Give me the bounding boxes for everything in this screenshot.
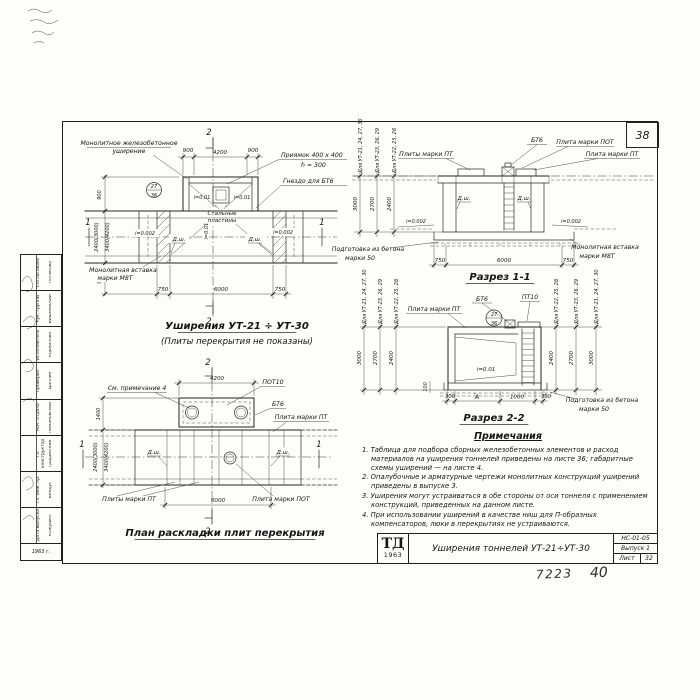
svg-text:2700: 2700	[370, 196, 376, 211]
section-axes	[85, 137, 337, 317]
svg-text:i=0.01: i=0.01	[477, 367, 496, 373]
label-see-note: См. примечание 4	[107, 385, 189, 408]
box-structure	[440, 320, 552, 396]
section-marker-1-right: 1	[319, 218, 324, 246]
svg-text:1: 1	[316, 440, 321, 450]
svg-text:2700: 2700	[569, 350, 575, 365]
svg-text:2400(3000): 2400(3000)	[94, 222, 100, 251]
detail-circle: 27 36	[486, 310, 502, 327]
height-dimensions: Для УТ-21, 24, 27, 30 Для УТ-23, 26, 29 …	[353, 118, 443, 237]
ground-lines	[352, 176, 655, 229]
svg-text:900: 900	[97, 190, 103, 200]
notes-title: Примечания	[362, 431, 654, 442]
logo-year: 1963	[384, 551, 403, 559]
svg-text:Разрез 1-1: Разрез 1-1	[469, 272, 530, 283]
notes-block: Примечания 1. Таблица для подбора сборны…	[362, 431, 654, 529]
section-marker-1-left: 1	[85, 218, 90, 246]
svg-text:Д.ш.: Д.ш.	[247, 237, 261, 243]
svg-text:2: 2	[206, 128, 211, 138]
sig-name: Корнилова	[49, 327, 61, 362]
slope-labels: i=0.002 i=0.002	[398, 219, 588, 227]
sheet-number: 32	[640, 554, 657, 563]
ladder-bt6	[504, 183, 514, 230]
svg-text:900: 900	[183, 148, 194, 154]
pit-square	[213, 187, 229, 203]
slope-floor-labels: i=0.002 i=0.002	[131, 228, 297, 237]
plan-plates-drawing: 2 4200 См. примечание 4 ПОТ10 БТ6	[75, 355, 350, 547]
svg-text:Д.ш.: Д.ш.	[275, 450, 289, 456]
svg-text:Плита марки ПОТ: Плита марки ПОТ	[252, 496, 311, 503]
svg-text:Для УТ-22, 25, 28: Для УТ-22, 25, 28	[554, 279, 560, 325]
svg-text:Для УТ-21, 24, 27, 30: Для УТ-21, 24, 27, 30	[594, 269, 600, 325]
pencil-number-right: 40	[590, 565, 608, 582]
svg-text:3400(4200): 3400(4200)	[105, 222, 111, 251]
label-plate-pt: Плита марки ПТ	[406, 306, 466, 328]
sig-name: Цаплин	[49, 363, 61, 398]
cover-plates	[438, 163, 549, 183]
svg-text:300: 300	[445, 394, 455, 400]
sig-name: Кожушко	[49, 508, 61, 543]
svg-text:900: 900	[248, 148, 259, 154]
svg-text:6000: 6000	[497, 258, 512, 264]
svg-text:Плита марки ПТ: Плита марки ПТ	[408, 306, 462, 313]
svg-text:Монолитная вставка: Монолитная вставка	[571, 244, 639, 251]
label-concrete-prep: Подготовка из бетона марки 50	[550, 392, 638, 413]
svg-text:i=0.002: i=0.002	[135, 231, 155, 237]
svg-text:Разрез 2-2: Разрез 2-2	[463, 413, 524, 424]
label-bt6: БТ6	[472, 296, 507, 321]
svg-text:Плиты марки ПТ: Плиты марки ПТ	[102, 496, 157, 503]
sheet-cell: Лист 32	[614, 554, 657, 563]
svg-text:Стальные: Стальные	[208, 211, 238, 217]
svg-text:Для УТ-21, 24, 27, 30: Для УТ-21, 24, 27, 30	[358, 118, 364, 174]
plan-widening-drawing: 2 2 1 1 900 4200 900 Приямок 400 х 400 h…	[75, 121, 350, 358]
label-monolithic-insert: Монолитная вставка марки М8Т	[570, 239, 639, 260]
svg-text:2400: 2400	[389, 350, 395, 365]
label-plates-pt-left: Плиты марки ПТ	[398, 151, 470, 170]
svg-text:36: 36	[491, 321, 497, 327]
svg-text:36: 36	[151, 193, 157, 199]
sig-name: Градинский	[49, 436, 61, 471]
sheet-label: Лист	[614, 555, 640, 562]
scanned-drawing-sheet: 38 СогласованоПолякова Рук. группыВишнев…	[0, 0, 700, 700]
svg-text:2: 2	[205, 358, 210, 368]
label-monolithic-insert: Монолитная вставка марки М8Т	[89, 256, 161, 282]
note-item-2: 2. Опалубочные и арматурные чертежи моно…	[362, 473, 654, 491]
publisher-logo: ТД 1963	[378, 534, 409, 563]
svg-text:4200: 4200	[210, 376, 225, 382]
svg-text:БТ6: БТ6	[476, 296, 488, 303]
label-steel-plates: Стальные пластины	[204, 205, 240, 224]
svg-text:100: 100	[423, 382, 429, 392]
sig-name: Лимановский	[49, 400, 61, 435]
svg-text:3000: 3000	[357, 350, 363, 365]
label-plate-pot: Плита марки ПОТ	[236, 464, 311, 503]
plate-band	[89, 430, 337, 485]
label-bt6: БТ6	[511, 137, 547, 165]
svg-text:Приямок 400 х 400: Приямок 400 х 400	[281, 152, 343, 159]
svg-text:уширение: уширение	[112, 148, 146, 155]
svg-text:2400: 2400	[549, 350, 555, 365]
section-2-2-title: Разрез 2-2	[460, 413, 528, 425]
issue-number: Выпуск 1	[614, 544, 657, 554]
note-item-3: 3. Уширения могут устраиваться в обе сто…	[362, 492, 654, 510]
svg-text:750: 750	[435, 258, 446, 264]
sig-name: Вишневский	[49, 291, 61, 326]
svg-text:3000: 3000	[589, 350, 595, 365]
sig-name: Полякова	[49, 255, 61, 290]
pot-plate	[179, 398, 254, 427]
svg-text:2700: 2700	[373, 350, 379, 365]
svg-text:Монолитное железобетонное: Монолитное железобетонное	[80, 139, 177, 147]
svg-text:марки 50: марки 50	[345, 255, 375, 262]
detail-circle: 27 36	[147, 183, 162, 200]
svg-text:Д.ш.: Д.ш.	[146, 450, 160, 456]
svg-text:Подготовка из бетона: Подготовка из бетона	[566, 396, 639, 404]
svg-text:1400: 1400	[96, 408, 102, 421]
svg-text:Д.ш.: Д.ш.	[456, 196, 470, 202]
svg-text:марки М8Т: марки М8Т	[579, 253, 615, 260]
section-2-2-drawing: 27 36 БТ6 ПТ10 Плита марки ПТ	[350, 291, 658, 430]
svg-text:750: 750	[563, 258, 574, 264]
svg-text:ПТ10: ПТ10	[522, 294, 538, 301]
joint-labels: Д.ш. Д.ш.	[456, 196, 531, 209]
section-marker-1-right: 1	[316, 440, 321, 468]
dim-100: 100	[423, 381, 430, 393]
svg-text:27: 27	[151, 184, 158, 190]
svg-text:БТ6: БТ6	[531, 137, 543, 144]
svg-text:Для УТ-21, 24, 27, 30: Для УТ-21, 24, 27, 30	[362, 269, 368, 325]
svg-text:6000: 6000	[214, 287, 229, 293]
dimension-bottom: 750 6000 750	[152, 265, 291, 299]
section-marker-1-left: 1	[79, 440, 84, 468]
document-code: НС-01-05	[614, 534, 657, 544]
label-plate-pt: Плита марки ПТ	[273, 414, 329, 432]
svg-text:(Плиты перекрытия не показаны): (Плиты перекрытия не показаны)	[161, 337, 313, 347]
svg-text:2400(3000): 2400(3000)	[93, 442, 99, 471]
svg-text:750: 750	[275, 287, 286, 293]
svg-text:Для УТ-23, 26, 29: Для УТ-23, 26, 29	[574, 279, 580, 325]
svg-text:3400(4200): 3400(4200)	[104, 442, 110, 471]
svg-text:марки 50: марки 50	[579, 406, 609, 413]
slope-pit-right: i=0.01	[234, 195, 251, 201]
svg-text:Подготовка из бетона: Подготовка из бетона	[332, 245, 405, 253]
svg-text:ПОТ10: ПОТ10	[262, 379, 283, 386]
svg-text:Д.ш.: Д.ш.	[171, 237, 185, 243]
section-marker-2-top: 2	[206, 128, 213, 152]
svg-text:Для УТ-23, 26, 29: Для УТ-23, 26, 29	[375, 128, 381, 174]
logo-td: ТД	[382, 538, 405, 551]
svg-text:i=0.002: i=0.002	[406, 219, 426, 225]
plan-top-title: Уширения УТ-21 ÷ УТ-30 (Плиты перекрытия…	[161, 321, 313, 347]
slope-axis: i=0.01	[204, 223, 210, 240]
dimension-top: 4200	[174, 376, 259, 396]
svg-text:Плита марки ПТ: Плита марки ПТ	[586, 151, 640, 158]
svg-text:6000: 6000	[211, 498, 226, 504]
sig-name: Бендус	[49, 472, 61, 507]
svg-text:Гнездо для БТ6: Гнездо для БТ6	[283, 178, 334, 185]
handwritten-signatures	[18, 252, 42, 562]
ladder	[522, 329, 534, 385]
svg-text:i=0.002: i=0.002	[561, 219, 581, 225]
svg-text:Плита марки ПОТ: Плита марки ПОТ	[556, 139, 615, 146]
svg-text:300: 300	[541, 394, 551, 400]
section-1-1-drawing: БТ6 Плита марки ПОТ Плиты марки ПТ Плита…	[350, 121, 658, 291]
pencil-number-left: 7223	[536, 566, 573, 581]
svg-text:27: 27	[491, 312, 498, 318]
svg-text:i=0.002: i=0.002	[273, 230, 293, 236]
label-pt10: ПТ10	[520, 294, 540, 321]
svg-text:Д.ш.: Д.ш.	[516, 196, 530, 202]
section-1-1-title: Разрез 1-1	[466, 272, 534, 284]
note-item-1: 1. Таблица для подбора сборных железобет…	[362, 446, 654, 472]
svg-text:А: А	[474, 394, 479, 401]
svg-text:Монолитная вставка: Монолитная вставка	[89, 267, 157, 274]
label-plate-pt-right: Плита марки ПТ	[534, 151, 640, 170]
svg-text:Для УТ-22, 25, 28: Для УТ-22, 25, 28	[392, 128, 398, 174]
dimension-top: 900 4200 900	[178, 148, 263, 175]
slope-pit-left: i=0.01	[194, 195, 211, 201]
slope-label: i=0.01	[472, 365, 500, 373]
svg-text:2400: 2400	[387, 196, 393, 211]
svg-text:План раскладки плит перекрытия: План раскладки плит перекрытия	[125, 528, 325, 539]
svg-text:пластины: пластины	[208, 218, 237, 224]
svg-text:БТ6: БТ6	[272, 401, 284, 408]
label-socket-bt6: Гнездо для БТ6	[256, 178, 347, 208]
svg-text:Плита марки ПТ: Плита марки ПТ	[275, 414, 329, 421]
svg-text:1: 1	[85, 218, 90, 228]
svg-text:750: 750	[158, 287, 169, 293]
svg-text:Уширения УТ-21 ÷ УТ-30: Уширения УТ-21 ÷ УТ-30	[165, 321, 309, 332]
svg-text:3000: 3000	[353, 196, 359, 211]
note-item-4: 4. При использовании уширений в качестве…	[362, 511, 654, 529]
svg-text:1: 1	[319, 218, 324, 228]
dimension-left-chain: 1400 2400(3000) 3400(4200)	[93, 396, 179, 488]
svg-text:Для УТ-23, 26, 29: Для УТ-23, 26, 29	[378, 279, 384, 325]
svg-text:См. примечание 4: См. примечание 4	[108, 385, 167, 392]
svg-text:h = 300: h = 300	[301, 162, 326, 169]
svg-text:4200: 4200	[213, 150, 228, 156]
pencil-annotation	[24, 3, 70, 47]
title-block-cells: НС-01-05 Выпуск 1 Лист 32	[613, 534, 657, 563]
svg-text:1000: 1000	[510, 395, 525, 401]
label-bt6: БТ6	[255, 401, 286, 415]
svg-text:Для УТ-22, 25, 28: Для УТ-22, 25, 28	[394, 279, 400, 325]
svg-text:марки М8Т: марки М8Т	[97, 275, 133, 282]
label-monolithic-widening: Монолитное железобетонное уширение	[80, 139, 187, 179]
svg-text:Плиты марки ПТ: Плиты марки ПТ	[399, 151, 454, 158]
svg-text:1: 1	[79, 440, 84, 450]
title-block: ТД 1963 Уширения тоннелей УТ-21÷УТ-30 НС…	[377, 533, 658, 564]
drawing-title: Уширения тоннелей УТ-21÷УТ-30	[409, 534, 613, 563]
plan-bottom-title: План раскладки плит перекрытия	[125, 528, 325, 540]
